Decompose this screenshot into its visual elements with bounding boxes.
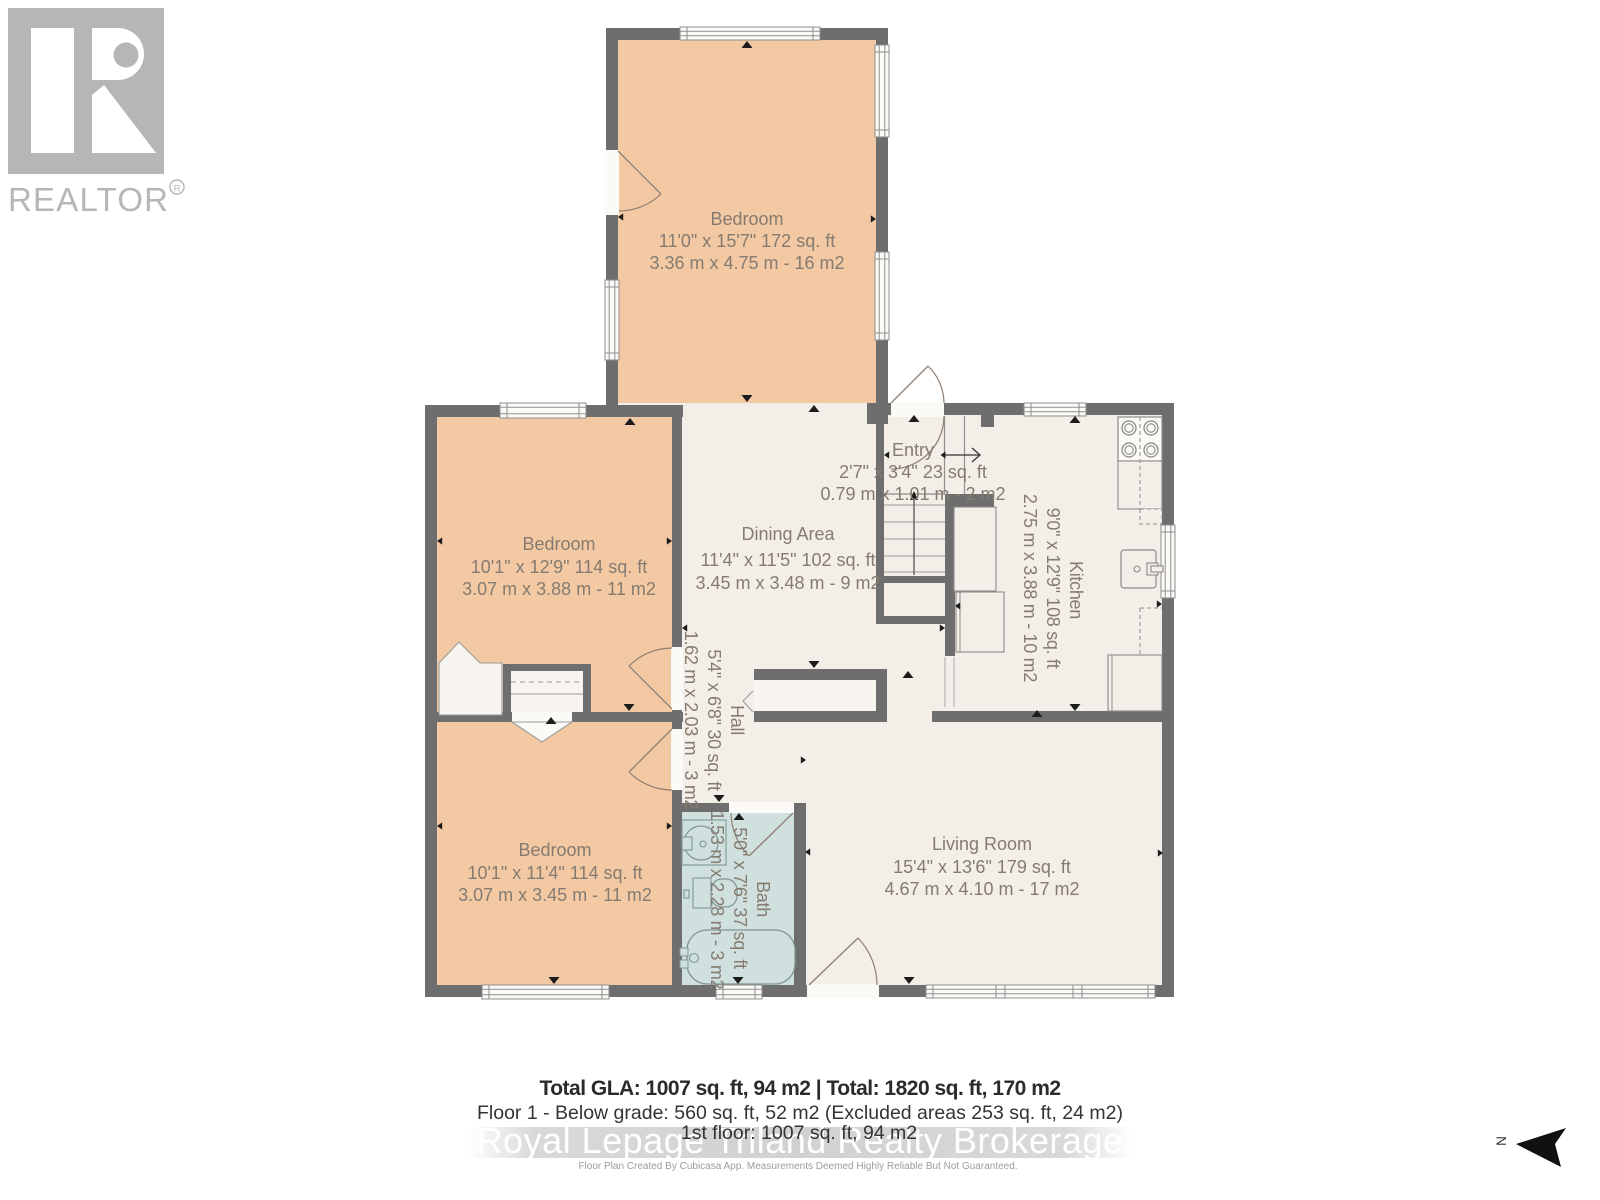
svg-text:Floor Plan Created By Cubicasa: Floor Plan Created By Cubicasa App. Meas… [578, 1161, 1017, 1172]
svg-text:11'4" x 11'5" 102 sq. ft: 11'4" x 11'5" 102 sq. ft [700, 550, 875, 570]
svg-text:10'1" x 12'9" 114 sq. ft: 10'1" x 12'9" 114 sq. ft [471, 557, 647, 577]
svg-text:Living Room: Living Room [932, 834, 1032, 854]
svg-text:2.75 m x 3.88 m - 10 m2: 2.75 m x 3.88 m - 10 m2 [1020, 494, 1040, 682]
svg-text:5'4" x 6'8" 30 sq. ft: 5'4" x 6'8" 30 sq. ft [704, 649, 724, 791]
svg-text:Dining Area: Dining Area [741, 524, 835, 544]
svg-text:9'0" x 12'9" 108 sq. ft: 9'0" x 12'9" 108 sq. ft [1043, 508, 1063, 669]
svg-text:Hall: Hall [727, 705, 747, 735]
svg-text:Bedroom: Bedroom [710, 209, 783, 229]
svg-text:3.45 m x 3.48 m - 9 m2: 3.45 m x 3.48 m - 9 m2 [695, 573, 880, 593]
svg-text:1.53 m x 2.28 m - 3 m2: 1.53 m x 2.28 m - 3 m2 [707, 811, 727, 990]
svg-text:3.07 m x 3.88 m - 11 m2: 3.07 m x 3.88 m - 11 m2 [462, 579, 656, 599]
svg-text:Total GLA: 1007 sq. ft, 94 m2: Total GLA: 1007 sq. ft, 94 m2 | Total: 1… [539, 1077, 1060, 1100]
svg-text:R: R [174, 184, 181, 195]
svg-text:Bath: Bath [753, 881, 773, 917]
svg-text:10'1" x 11'4" 114 sq. ft: 10'1" x 11'4" 114 sq. ft [467, 863, 642, 883]
svg-text:N: N [1494, 1136, 1509, 1146]
svg-text:Kitchen: Kitchen [1066, 561, 1086, 619]
svg-text:3.36 m x 4.75 m - 16 m2: 3.36 m x 4.75 m - 16 m2 [649, 253, 844, 273]
svg-text:Entry: Entry [892, 440, 934, 460]
svg-text:15'4" x 13'6" 179 sq. ft: 15'4" x 13'6" 179 sq. ft [893, 857, 1071, 877]
svg-text:4.67 m x 4.10 m - 17 m2: 4.67 m x 4.10 m - 17 m2 [884, 879, 1079, 899]
svg-text:5'0" x 7'6" 37 sq. ft: 5'0" x 7'6" 37 sq. ft [730, 827, 750, 969]
svg-text:1.62 m x 2.03 m - 3 m2: 1.62 m x 2.03 m - 3 m2 [681, 631, 701, 810]
svg-text:0.79 m x 1.01 m - 2 m2: 0.79 m x 1.01 m - 2 m2 [820, 484, 1005, 504]
svg-text:11'0" x 15'7" 172 sq. ft: 11'0" x 15'7" 172 sq. ft [659, 231, 835, 251]
svg-text:2'7" x 3'4" 23 sq. ft: 2'7" x 3'4" 23 sq. ft [839, 462, 987, 482]
svg-text:Bedroom: Bedroom [518, 840, 591, 860]
svg-text:1st floor: 1007 sq. ft, 94 m2: 1st floor: 1007 sq. ft, 94 m2 [681, 1122, 917, 1144]
svg-text:Bedroom: Bedroom [522, 534, 595, 554]
svg-text:3.07 m x 3.45 m - 11 m2: 3.07 m x 3.45 m - 11 m2 [458, 885, 652, 905]
svg-text:REALTOR: REALTOR [8, 181, 169, 218]
